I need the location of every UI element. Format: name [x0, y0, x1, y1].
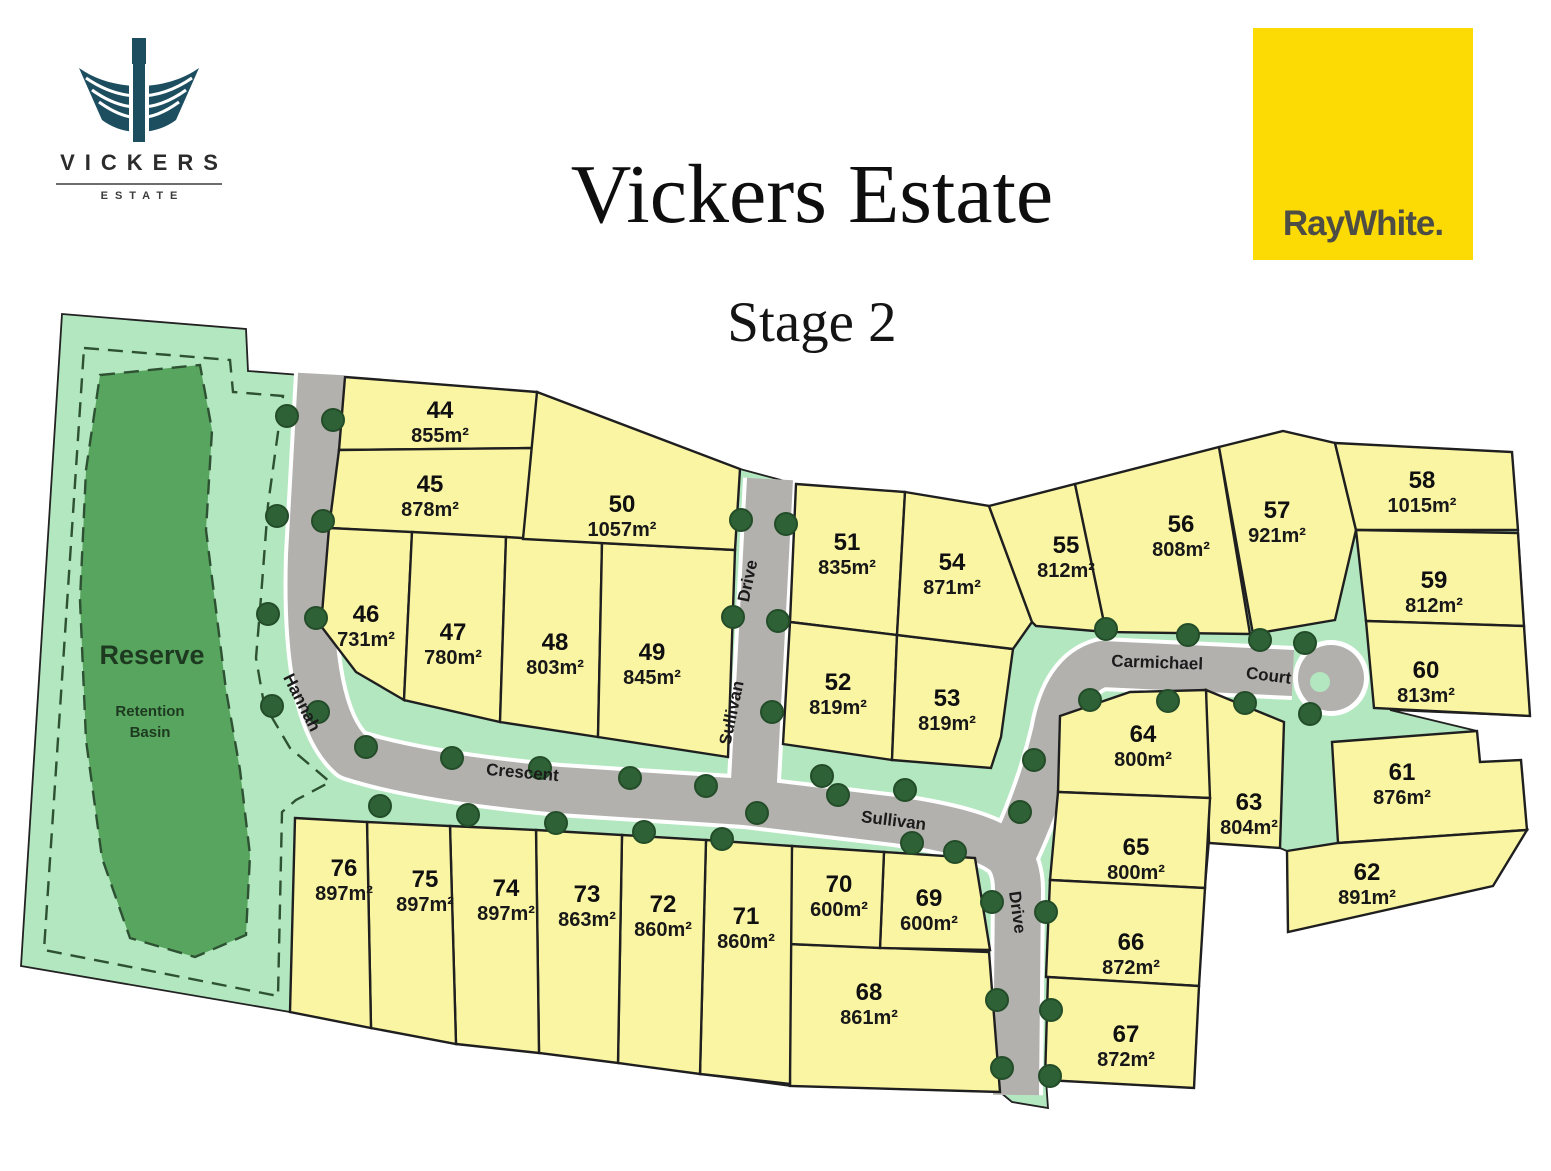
tree-icon: [746, 802, 768, 824]
tree-icon: [312, 510, 334, 532]
lot-56-number: 56: [1168, 511, 1195, 538]
tree-icon: [722, 606, 744, 628]
tree-icon: [619, 767, 641, 789]
lot-72-polygon: [618, 835, 706, 1074]
tree-icon: [441, 747, 463, 769]
lot-71-number: 71: [733, 903, 760, 930]
lot-48-number: 48: [542, 629, 569, 656]
tree-icon: [761, 701, 783, 723]
lot-49-area: 845m²: [623, 667, 681, 689]
tree-icon: [775, 513, 797, 535]
lot-50-area: 1057m²: [588, 519, 657, 541]
lot-51-area: 835m²: [818, 557, 876, 579]
tree-icon: [1157, 690, 1179, 712]
tree-icon: [261, 695, 283, 717]
cul-de-sac-island: [1310, 672, 1330, 692]
lot-52-area: 819m²: [809, 697, 867, 719]
lot-64-number: 64: [1130, 721, 1157, 748]
lot-69-area: 600m²: [900, 913, 958, 935]
tree-icon: [1095, 618, 1117, 640]
tree-icon: [1079, 689, 1101, 711]
estate-map: 44855m²45878m²46731m²47780m²48803m²49845…: [0, 0, 1551, 1171]
lot-68-number: 68: [856, 979, 883, 1006]
lot-51-number: 51: [834, 529, 861, 556]
lot-62-number: 62: [1354, 859, 1381, 886]
lot-47-number: 47: [440, 619, 467, 646]
lot-55-area: 812m²: [1037, 560, 1095, 582]
lot-66-number: 66: [1118, 929, 1145, 956]
lot-65-number: 65: [1123, 834, 1150, 861]
lot-62-polygon: [1287, 830, 1527, 932]
lot-48-area: 803m²: [526, 657, 584, 679]
lot-76-area: 897m²: [315, 883, 373, 905]
cul-de-sac: [1298, 645, 1364, 711]
lot-45-area: 878m²: [401, 499, 459, 521]
tree-icon: [369, 795, 391, 817]
retention-basin-label-line1: Retention: [115, 703, 184, 720]
tree-icon: [355, 736, 377, 758]
lot-76-number: 76: [331, 855, 358, 882]
lot-73-number: 73: [574, 881, 601, 908]
lot-57-area: 921m²: [1248, 525, 1306, 547]
tree-icon: [1234, 692, 1256, 714]
lot-65-area: 800m²: [1107, 862, 1165, 884]
tree-icon: [1040, 999, 1062, 1021]
lot-69-number: 69: [916, 885, 943, 912]
lot-46-number: 46: [353, 601, 380, 628]
lot-50-number: 50: [609, 491, 636, 518]
tree-icon: [266, 505, 288, 527]
tree-icon: [767, 610, 789, 632]
lot-53-area: 819m²: [918, 713, 976, 735]
tree-icon: [695, 775, 717, 797]
lot-74-number: 74: [493, 875, 520, 902]
lot-45-number: 45: [417, 471, 444, 498]
lot-66-area: 872m²: [1102, 957, 1160, 979]
lot-60-area: 813m²: [1397, 685, 1455, 707]
lot-72-area: 860m²: [634, 919, 692, 941]
tree-icon: [811, 765, 833, 787]
lot-59-number: 59: [1421, 567, 1448, 594]
lot-58-number: 58: [1409, 467, 1436, 494]
tree-icon: [944, 841, 966, 863]
lot-70-area: 600m²: [810, 899, 868, 921]
lot-63-number: 63: [1236, 789, 1263, 816]
lot-62-area: 891m²: [1338, 887, 1396, 909]
lot-73-polygon: [536, 830, 622, 1063]
street-label-carmichael: Carmichael: [1111, 651, 1203, 673]
reserve-label: Reserve: [99, 640, 204, 670]
lot-64-area: 800m²: [1114, 749, 1172, 771]
tree-icon: [981, 891, 1003, 913]
tree-icon: [633, 821, 655, 843]
lot-55-number: 55: [1053, 532, 1080, 559]
lot-47-area: 780m²: [424, 647, 482, 669]
lot-76-polygon: [290, 818, 371, 1028]
lot-46-area: 731m²: [337, 629, 395, 651]
lot-75-polygon: [367, 822, 456, 1044]
lot-49-polygon: [598, 543, 735, 757]
lot-52-number: 52: [825, 669, 852, 696]
tree-icon: [1299, 703, 1321, 725]
tree-icon: [827, 784, 849, 806]
tree-icon: [322, 409, 344, 431]
lot-63-area: 804m²: [1220, 817, 1278, 839]
lot-67-number: 67: [1113, 1021, 1140, 1048]
lot-61-area: 876m²: [1373, 787, 1431, 809]
lot-61-number: 61: [1389, 759, 1416, 786]
tree-icon: [991, 1057, 1013, 1079]
retention-basin-label-line2: Basin: [130, 724, 171, 741]
tree-icon: [457, 804, 479, 826]
tree-icon: [305, 607, 327, 629]
tree-icon: [1035, 901, 1057, 923]
lot-56-area: 808m²: [1152, 539, 1210, 561]
lot-71-area: 860m²: [717, 931, 775, 953]
tree-icon: [1249, 629, 1271, 651]
lot-54-area: 871m²: [923, 577, 981, 599]
lot-54-number: 54: [939, 549, 966, 576]
lot-70-number: 70: [826, 871, 853, 898]
lot-59-area: 812m²: [1405, 595, 1463, 617]
tree-icon: [1294, 632, 1316, 654]
lot-74-polygon: [450, 826, 539, 1053]
lot-53-number: 53: [934, 685, 961, 712]
lot-72-number: 72: [650, 891, 677, 918]
lot-73-area: 863m²: [558, 909, 616, 931]
lot-44-area: 855m²: [411, 425, 469, 447]
tree-icon: [257, 603, 279, 625]
tree-icon: [894, 779, 916, 801]
tree-icon: [901, 832, 923, 854]
estate-plan-page: VICKERS ESTATE Vickers Estate Stage 2 Ra…: [0, 0, 1551, 1171]
lot-71-polygon: [700, 840, 792, 1084]
lot-57-number: 57: [1264, 497, 1291, 524]
lot-60-number: 60: [1413, 657, 1440, 684]
tree-icon: [1177, 624, 1199, 646]
lot-58-area: 1015m²: [1388, 495, 1457, 517]
lot-44-number: 44: [427, 397, 454, 424]
tree-icon: [545, 812, 567, 834]
tree-icon: [1039, 1065, 1061, 1087]
lot-67-area: 872m²: [1097, 1049, 1155, 1071]
tree-icon: [276, 405, 298, 427]
tree-icon: [730, 509, 752, 531]
lot-75-area: 897m²: [396, 894, 454, 916]
tree-icon: [711, 828, 733, 850]
lot-74-area: 897m²: [477, 903, 535, 925]
tree-icon: [986, 989, 1008, 1011]
tree-icon: [1009, 801, 1031, 823]
tree-icon: [1023, 749, 1045, 771]
lot-49-number: 49: [639, 639, 666, 666]
lot-68-area: 861m²: [840, 1007, 898, 1029]
lot-75-number: 75: [412, 866, 439, 893]
